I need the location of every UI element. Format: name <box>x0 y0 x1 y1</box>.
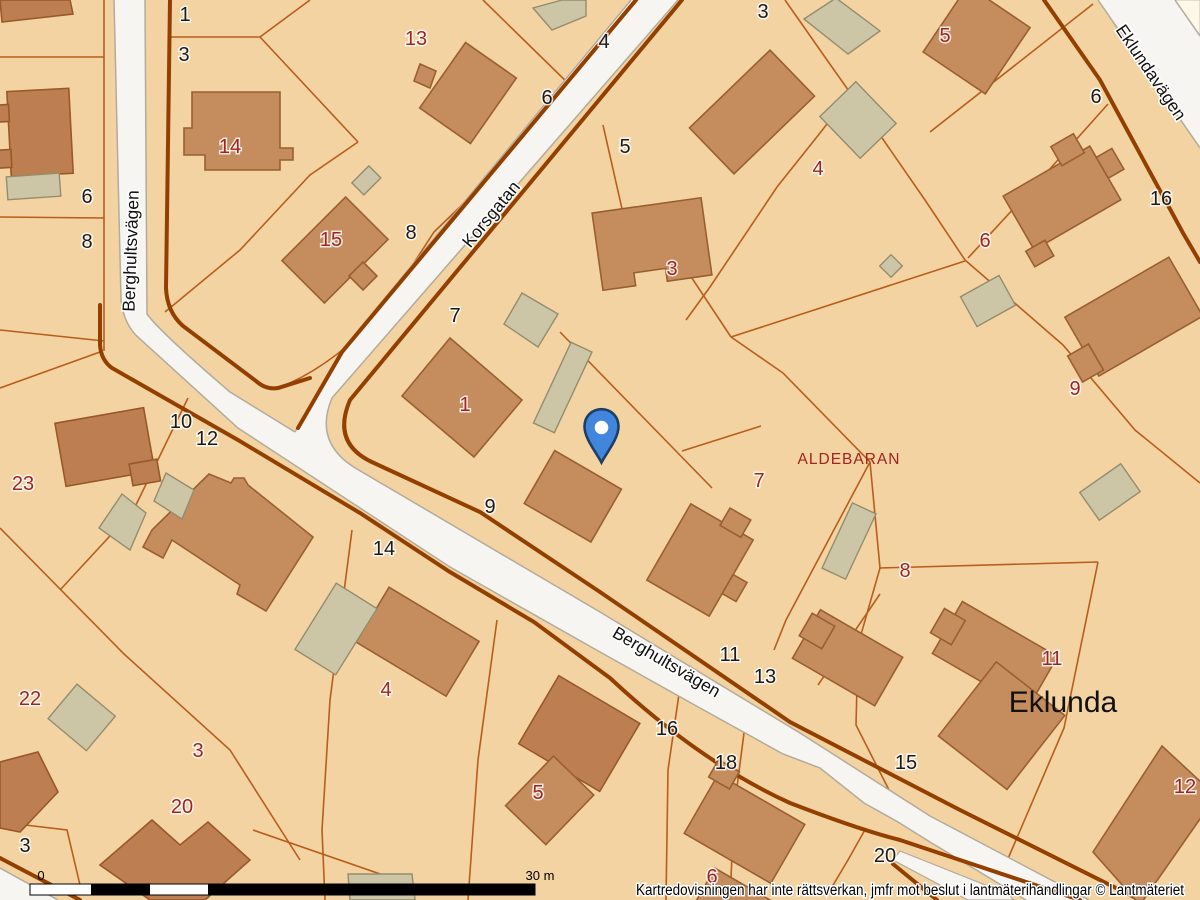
svg-text:0: 0 <box>37 868 44 883</box>
svg-text:3: 3 <box>757 1 768 23</box>
svg-text:7: 7 <box>449 305 460 327</box>
svg-text:23: 23 <box>12 473 34 495</box>
svg-text:1: 1 <box>459 394 470 416</box>
svg-text:5: 5 <box>619 136 630 158</box>
svg-text:4: 4 <box>380 679 391 701</box>
svg-text:16: 16 <box>656 718 678 740</box>
svg-text:15: 15 <box>320 229 342 251</box>
svg-text:6: 6 <box>1090 86 1101 108</box>
svg-text:16: 16 <box>1150 188 1172 210</box>
svg-text:5: 5 <box>532 782 543 804</box>
svg-text:6: 6 <box>81 186 92 208</box>
svg-text:20: 20 <box>874 845 896 867</box>
svg-text:3: 3 <box>178 44 189 66</box>
svg-text:8: 8 <box>405 222 416 244</box>
svg-text:Berghultsvägen: Berghultsvägen <box>119 190 143 312</box>
svg-text:11: 11 <box>720 644 741 666</box>
svg-text:3: 3 <box>19 835 30 857</box>
svg-text:14: 14 <box>373 538 395 560</box>
svg-text:11: 11 <box>1042 648 1063 670</box>
svg-text:7: 7 <box>753 470 764 492</box>
svg-text:5: 5 <box>939 25 950 47</box>
svg-text:6: 6 <box>979 230 990 252</box>
svg-text:18: 18 <box>715 752 737 774</box>
svg-text:Kartredovisningen har inte rät: Kartredovisningen har inte rättsverkan, … <box>636 882 1185 899</box>
svg-text:13: 13 <box>754 666 776 688</box>
svg-text:3: 3 <box>666 258 677 280</box>
svg-text:8: 8 <box>81 231 92 253</box>
svg-text:10: 10 <box>170 411 192 433</box>
svg-text:9: 9 <box>1069 378 1080 400</box>
svg-text:4: 4 <box>598 31 609 53</box>
svg-text:8: 8 <box>899 560 910 582</box>
svg-text:12: 12 <box>1174 776 1196 798</box>
svg-text:6: 6 <box>541 87 552 109</box>
svg-text:20: 20 <box>171 796 193 818</box>
svg-text:13: 13 <box>405 28 427 50</box>
svg-text:Eklunda: Eklunda <box>1009 686 1118 719</box>
svg-text:15: 15 <box>895 752 917 774</box>
svg-text:30 m: 30 m <box>526 868 555 883</box>
svg-text:ALDEBARAN: ALDEBARAN <box>798 451 901 468</box>
svg-text:22: 22 <box>19 688 41 710</box>
svg-text:14: 14 <box>219 136 241 158</box>
svg-text:3: 3 <box>192 740 203 762</box>
svg-text:12: 12 <box>196 428 218 450</box>
svg-text:9: 9 <box>484 496 495 518</box>
svg-text:4: 4 <box>812 158 823 180</box>
svg-text:1: 1 <box>179 4 190 26</box>
